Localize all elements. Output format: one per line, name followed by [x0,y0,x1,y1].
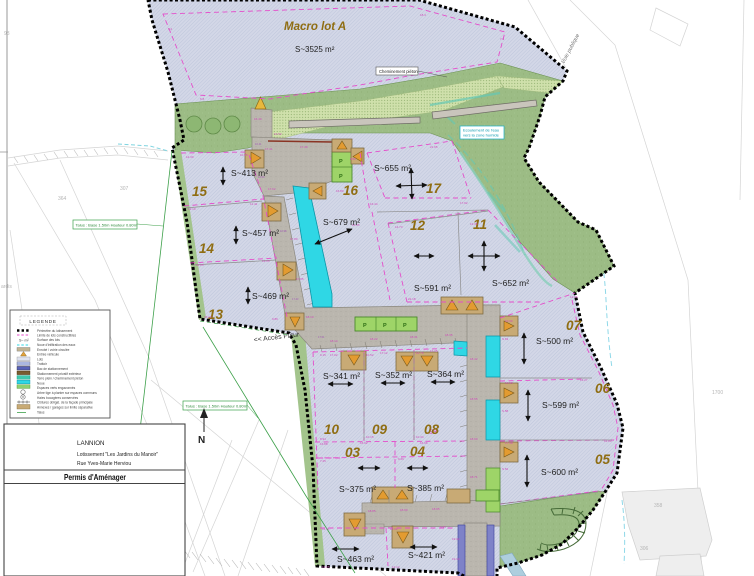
svg-text:16.52: 16.52 [274,132,282,136]
svg-text:P: P [339,174,343,180]
svg-text:18.14: 18.14 [330,339,338,343]
svg-text:05: 05 [595,452,611,467]
svg-text:17.25: 17.25 [430,349,438,353]
svg-text:10.52: 10.52 [366,353,374,357]
svg-text:Talus : Base 1.50m Hauteur 0.8: Talus : Base 1.50m Hauteur 0.80m [186,404,248,409]
svg-text:Stationnement privatif extérie: Stationnement privatif extérieur [37,372,82,376]
svg-text:17.62: 17.62 [268,187,276,191]
svg-text:S.58: S.58 [502,409,509,413]
svg-text:S~421 m²: S~421 m² [408,550,445,560]
svg-text:10.92: 10.92 [390,527,398,531]
svg-text:17.61: 17.61 [318,335,325,339]
svg-text:S~652 m²: S~652 m² [492,278,529,288]
svg-text:P: P [383,323,387,329]
svg-text:vers la zone humide: vers la zone humide [463,133,500,138]
svg-text:S~469 m²: S~469 m² [252,291,289,301]
svg-text:Enrobé / voirie circulée: Enrobé / voirie circulée [37,348,70,352]
svg-text:9.2: 9.2 [168,27,173,31]
svg-text:10.95: 10.95 [240,153,248,157]
svg-text:18.95: 18.95 [432,507,440,511]
svg-text:17.12: 17.12 [380,351,388,355]
svg-text:18.35: 18.35 [445,333,453,337]
svg-text:10.34: 10.34 [416,435,424,439]
svg-text:17.02: 17.02 [330,353,338,357]
svg-text:Cheminement piéton: Cheminement piéton [379,69,418,74]
svg-text:S~600 m²: S~600 m² [541,467,578,477]
svg-text:17.41: 17.41 [265,147,273,151]
svg-text:10: 10 [324,422,340,437]
svg-text:12: 12 [410,218,426,233]
svg-text:Talus: Talus [37,411,45,415]
svg-text:17.80: 17.80 [290,237,298,241]
svg-text:LEGENDE: LEGENDE [29,319,56,325]
svg-text:19.02: 19.02 [452,537,460,541]
svg-text:Entrée véhicule: Entrée véhicule [37,353,59,357]
svg-text:Arbre tige à planter sur espac: Arbre tige à planter sur espaces communs [37,391,97,395]
svg-text:Talus : Base 1.50m Hauteur 0.8: Talus : Base 1.50m Hauteur 0.80m [76,223,138,228]
svg-text:14: 14 [199,241,215,256]
svg-text:Noue d'infiltration des eaux: Noue d'infiltration des eaux [37,343,76,347]
svg-text:S~463 m²: S~463 m² [337,554,374,564]
svg-text:Espaces verts engazonnés: Espaces verts engazonnés [37,386,76,390]
svg-text:10.30: 10.30 [505,319,513,323]
svg-text:18.10: 18.10 [306,315,314,319]
svg-text:ardis: ardis [1,284,12,290]
svg-text:Lotissement "Les Jardins du Ma: Lotissement "Les Jardins du Manoir" [77,452,158,458]
svg-text:15.40: 15.40 [204,315,212,319]
svg-text:9.66: 9.66 [398,457,404,461]
svg-text:11.74: 11.74 [322,527,330,531]
svg-text:21.65: 21.65 [430,145,438,149]
svg-text:Permis d'Aménager: Permis d'Aménager [64,472,127,482]
svg-text:04: 04 [410,444,426,459]
svg-text:16.44: 16.44 [370,202,378,206]
svg-text:9.86: 9.86 [272,317,278,321]
svg-text:18.71: 18.71 [470,475,478,479]
svg-text:306: 306 [640,546,649,552]
svg-text:18.31: 18.31 [410,335,418,339]
svg-text:Annexes / garages sur limite s: Annexes / garages sur limite séparative [37,405,93,409]
svg-text:Trottoir: Trottoir [37,362,48,366]
svg-text:Bac de stationnement: Bac de stationnement [37,367,68,371]
svg-text:Périmètre du lotissement: Périmètre du lotissement [37,329,72,333]
svg-text:S~655 m²: S~655 m² [374,163,411,173]
svg-text:8.94: 8.94 [320,437,326,441]
svg-text:Haies bocagères conservées: Haies bocagères conservées [37,396,79,400]
svg-text:9.45: 9.45 [440,525,446,529]
svg-text:17.43: 17.43 [292,297,299,301]
svg-text:1700: 1700 [712,390,723,396]
svg-text:18.22: 18.22 [370,337,378,341]
svg-text:P: P [403,323,407,329]
svg-text:307: 307 [120,186,129,192]
svg-text:7.25: 7.25 [320,459,326,463]
svg-text:14.73: 14.73 [395,225,403,229]
svg-text:P: P [339,159,343,165]
svg-text:06: 06 [595,381,611,396]
svg-text:S~341 m²: S~341 m² [323,371,360,381]
svg-text:17.49: 17.49 [300,145,308,149]
svg-text:07: 07 [566,318,583,333]
svg-text:S~599 m²: S~599 m² [542,400,579,410]
svg-text:16.41: 16.41 [255,142,262,146]
svg-text:16.40: 16.40 [254,117,262,121]
svg-text:Rue Yves-Marie Herviou: Rue Yves-Marie Herviou [77,461,131,467]
svg-text:16.98: 16.98 [280,229,287,233]
svg-text:8.52: 8.52 [350,157,356,161]
svg-text:18.85: 18.85 [368,509,376,513]
svg-text:S~352 m²: S~352 m² [375,370,412,380]
svg-text:364: 364 [58,196,67,202]
svg-text:22.18: 22.18 [408,297,416,301]
svg-text:S~591 m²: S~591 m² [414,283,451,293]
svg-text:18.4: 18.4 [420,13,426,17]
svg-text:Lots: Lots [37,357,43,361]
svg-text:16: 16 [343,183,359,198]
svg-text:S.52: S.52 [502,467,509,471]
svg-text:18.42: 18.42 [470,357,478,361]
svg-text:13.35: 13.35 [470,222,478,226]
svg-text:S~500 m²: S~500 m² [536,336,573,346]
svg-text:16.59: 16.59 [258,175,265,179]
svg-text:09: 09 [372,422,388,437]
svg-text:Surface des lots: Surface des lots [37,338,60,342]
svg-text:17: 17 [426,181,443,196]
svg-text:P: P [363,323,367,329]
svg-text:12.05: 12.05 [262,259,270,263]
svg-text:S~3525 m²: S~3525 m² [295,45,335,54]
svg-text:N: N [198,435,205,446]
svg-text:358: 358 [654,503,663,509]
svg-text:98: 98 [4,31,10,37]
svg-text:12.12: 12.12 [392,565,400,569]
svg-text:16.92: 16.92 [360,441,368,445]
svg-text:Macro lot A: Macro lot A [284,21,346,33]
svg-text:16.95: 16.95 [505,381,513,385]
svg-text:15: 15 [192,184,208,199]
svg-text:Terre plein / cheminement piét: Terre plein / cheminement piéton [37,377,83,381]
svg-text:17.95: 17.95 [296,277,304,281]
svg-text:S~679 m²: S~679 m² [323,217,360,227]
svg-text:13.27: 13.27 [580,378,588,382]
svg-text:LANNION: LANNION [77,440,105,447]
svg-text:12.80: 12.80 [604,439,612,443]
svg-text:18.55: 18.55 [470,397,478,401]
svg-text:12.66: 12.66 [570,295,578,299]
svg-text:9.15: 9.15 [320,353,326,357]
svg-text:18.90: 18.90 [400,508,408,512]
svg-text:14.25: 14.25 [196,263,204,267]
svg-text:03: 03 [345,445,361,460]
svg-text:08: 08 [424,422,440,437]
svg-text:S~385 m²: S~385 m² [407,483,444,493]
svg-text:13.10: 13.10 [188,207,196,211]
svg-text:7.6: 7.6 [500,37,505,41]
svg-text:Noue: Noue [37,381,45,385]
svg-text:Clôtures obligat. de la façade: Clôtures obligat. de la façade principal… [37,401,93,405]
svg-text:18.60: 18.60 [470,437,478,441]
svg-text:S~457 m²: S~457 m² [242,228,279,238]
svg-text:S~ m²: S~ m² [19,339,29,343]
svg-text:17.58: 17.58 [505,441,513,445]
svg-text:S~375 m²: S~375 m² [339,484,376,494]
svg-text:S.63: S.63 [502,337,509,341]
svg-text:10.15: 10.15 [366,435,374,439]
svg-text:Limite de lots constructibles: Limite de lots constructibles [37,333,77,337]
svg-text:12.30: 12.30 [186,155,194,159]
svg-text:S~364 m²: S~364 m² [427,369,464,379]
svg-text:10.76: 10.76 [416,351,424,355]
svg-text:19.10: 19.10 [452,557,460,561]
svg-text:17.92: 17.92 [460,201,468,205]
svg-text:13.35: 13.35 [322,565,330,569]
svg-text:6.8: 6.8 [200,97,205,101]
svg-text:11.42: 11.42 [250,202,258,206]
svg-text:16.88: 16.88 [320,442,328,446]
